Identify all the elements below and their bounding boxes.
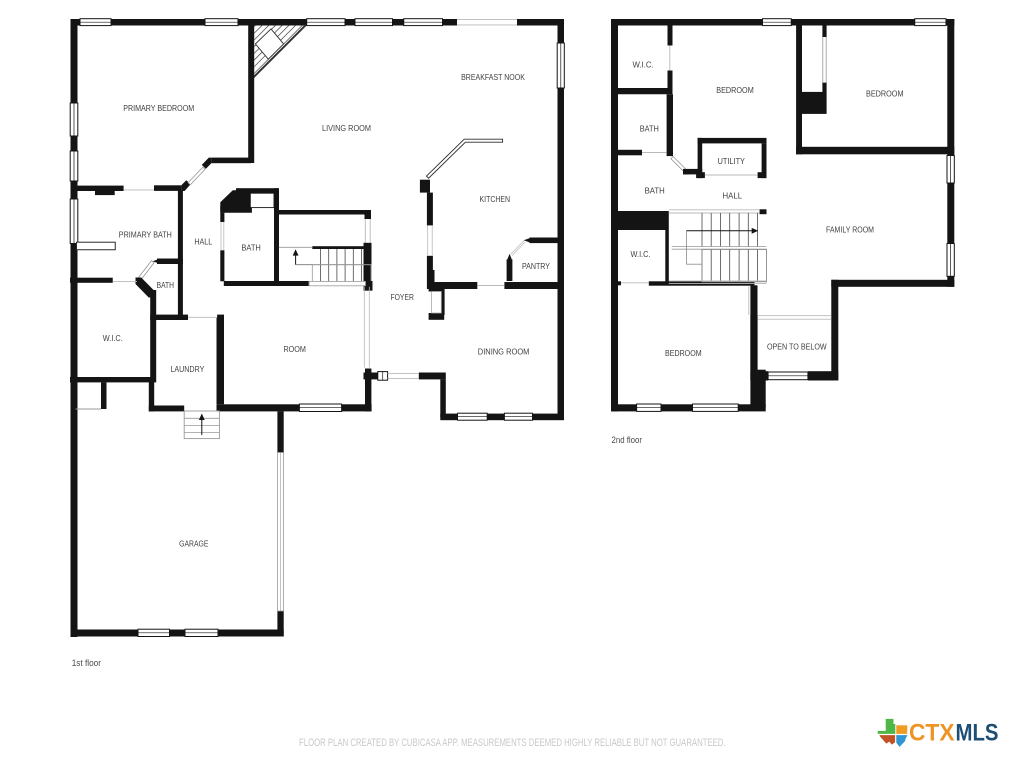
svg-text:LAUNDRY: LAUNDRY [170,364,204,374]
svg-text:PRIMARY BATH: PRIMARY BATH [119,230,172,240]
svg-text:UTILITY: UTILITY [718,156,746,166]
svg-text:OPEN TO BELOW: OPEN TO BELOW [767,341,827,351]
svg-text:PRIMARY BEDROOM: PRIMARY BEDROOM [123,103,194,113]
svg-text:CTX: CTX [909,720,955,747]
svg-text:BEDROOM: BEDROOM [716,85,754,95]
svg-text:FOYER: FOYER [391,292,414,302]
svg-text:MLS: MLS [956,720,999,747]
svg-text:BATH: BATH [241,243,260,253]
svg-text:HALL: HALL [194,237,212,247]
svg-text:FAMILY ROOM: FAMILY ROOM [826,225,874,235]
svg-text:LIVING ROOM: LIVING ROOM [322,123,371,133]
svg-text:DINING ROOM: DINING ROOM [478,347,530,357]
svg-text:GARAGE: GARAGE [179,538,209,548]
svg-text:BREAKFAST NOOK: BREAKFAST NOOK [461,72,525,82]
svg-text:W.I.C.: W.I.C. [631,249,651,259]
svg-text:KITCHEN: KITCHEN [480,194,511,204]
svg-text:HALL: HALL [723,190,743,200]
svg-text:W.I.C.: W.I.C. [632,59,653,69]
svg-text:FLOOR PLAN CREATED BY CUBICASA: FLOOR PLAN CREATED BY CUBICASA APP. MEAS… [299,737,726,749]
svg-text:PANTRY: PANTRY [522,261,550,271]
svg-text:W.I.C.: W.I.C. [103,333,123,343]
svg-text:BATH: BATH [640,124,659,134]
svg-text:2nd floor: 2nd floor [612,435,643,445]
svg-text:BATH: BATH [645,186,665,196]
svg-text:BEDROOM: BEDROOM [866,89,904,99]
svg-text:BEDROOM: BEDROOM [665,348,702,358]
svg-text:1st floor: 1st floor [72,658,101,668]
svg-text:ROOM: ROOM [283,344,306,354]
svg-text:BATH: BATH [157,280,174,290]
